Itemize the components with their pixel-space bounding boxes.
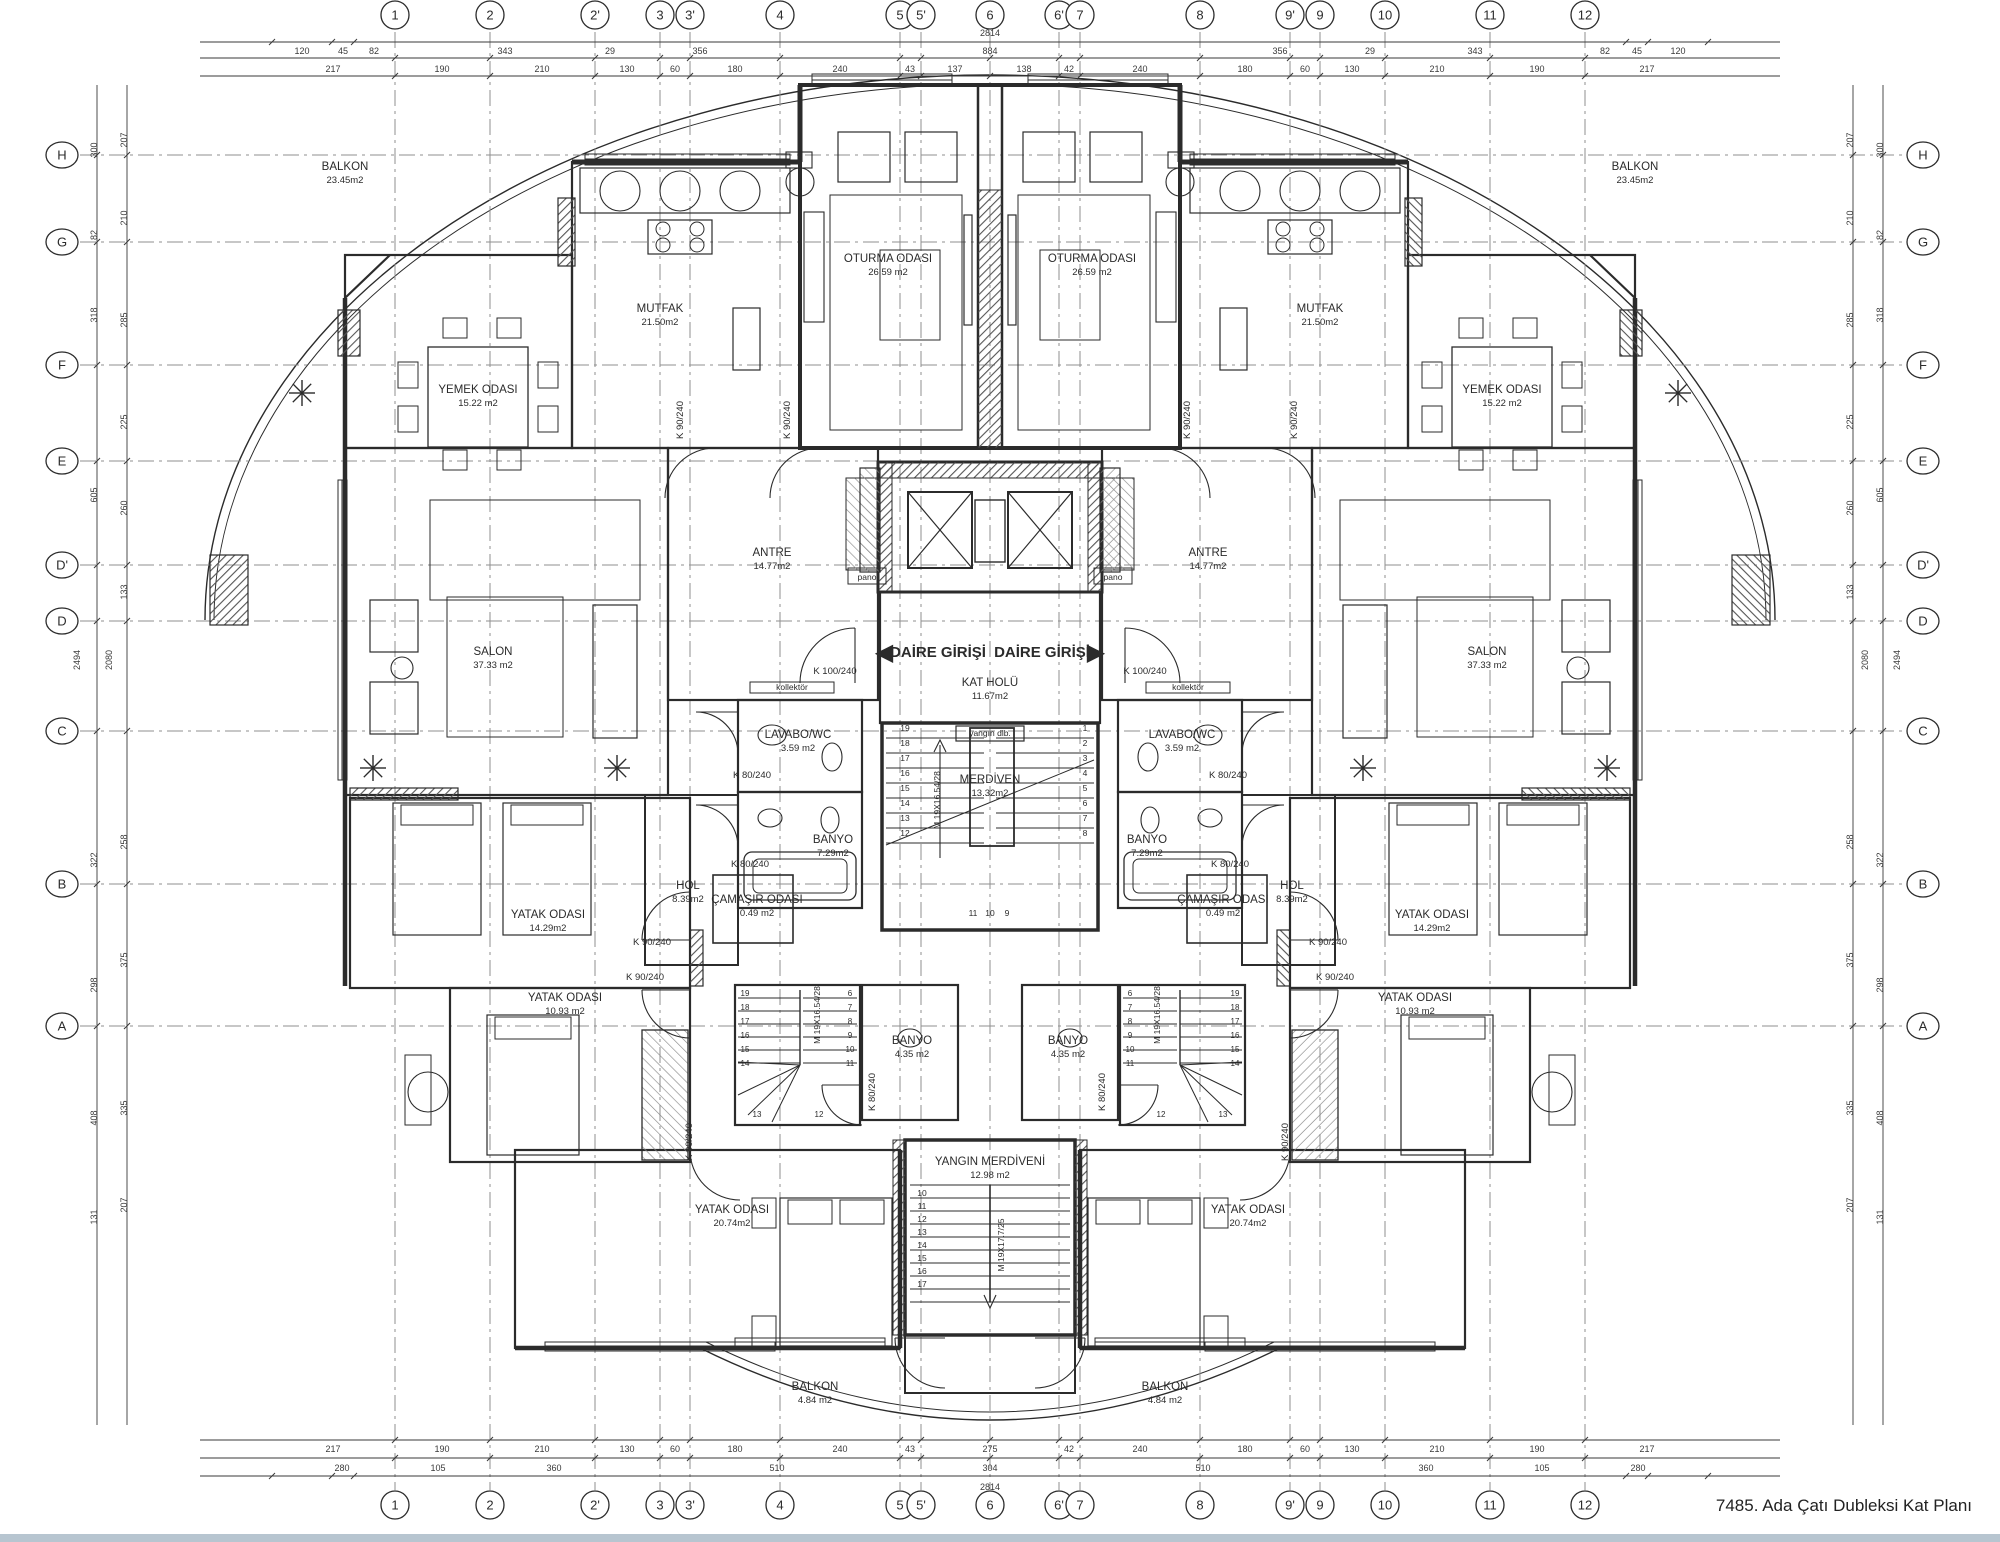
- furniture-sofa: [1343, 605, 1387, 738]
- room-label: MUTFAK: [637, 303, 684, 315]
- grid-bubble-label: 2: [486, 1498, 493, 1513]
- annotation-label: K 90/240: [782, 401, 793, 439]
- annotation-label: K 90/240: [1280, 1123, 1291, 1161]
- dim-text: 190: [1529, 1444, 1544, 1454]
- stair-step-number: 6: [1083, 798, 1088, 808]
- divider-shaft: [978, 190, 1002, 448]
- room-area-label: 4.84 m2: [798, 1395, 832, 1406]
- room-yatak-2074: [1080, 1150, 1465, 1348]
- stair-step-number: 16: [917, 1266, 927, 1276]
- stair-step-number: 5: [1083, 783, 1088, 793]
- dim-text: 298: [1875, 977, 1885, 992]
- stair-step-number: 15: [900, 783, 910, 793]
- room-area-label: 0.49 m2: [740, 908, 774, 919]
- stair-step-number: 7: [1083, 813, 1088, 823]
- dim-text: 240: [1132, 64, 1147, 74]
- grid-bubble-label: E: [1919, 454, 1928, 469]
- dim-text: 217: [325, 1444, 340, 1454]
- door-arc: [1118, 1085, 1158, 1125]
- wc-toilet: [822, 743, 842, 771]
- kitchen-sink-counter: [733, 308, 760, 370]
- dim-text: 45: [1632, 46, 1642, 56]
- dim-text: 304: [982, 1463, 997, 1473]
- room-label: KAT HOLÜ: [962, 677, 1018, 689]
- hatch-pier: [1620, 310, 1642, 356]
- room-area-label: 15.22 m2: [458, 398, 498, 409]
- stair-step-number: 13: [1219, 1110, 1228, 1119]
- stove-burner: [1310, 222, 1324, 236]
- dim-text: 335: [119, 1100, 129, 1115]
- furniture-chair: [1459, 450, 1483, 470]
- room-label: BALKON: [1142, 1381, 1189, 1393]
- furniture-armchair: [370, 600, 418, 652]
- stair-step-number: 16: [1231, 1031, 1240, 1040]
- stair-step-number: 16: [900, 768, 910, 778]
- dim-text: 210: [1845, 210, 1855, 225]
- kitchen-fixture: [660, 171, 700, 211]
- stair-step-number: 16: [741, 1031, 750, 1040]
- stair-step-number: 17: [917, 1279, 927, 1289]
- dim-text: 29: [1365, 46, 1375, 56]
- ceiling-star-icon: [1363, 768, 1372, 777]
- annotation-label: K 90/240: [1182, 401, 1193, 439]
- annotation-label: K 80/240: [731, 859, 769, 870]
- bidet: [1141, 807, 1159, 833]
- room-duplex-stair: [735, 985, 860, 1125]
- wall-chamfer: [345, 255, 390, 298]
- room-label: BALKON: [792, 1381, 839, 1393]
- dim-text: 260: [119, 500, 129, 515]
- annotation-label: M 19X16.54/28: [932, 771, 942, 829]
- room-area-label: 14.77m2: [1190, 561, 1227, 572]
- ceiling-star-icon: [302, 384, 311, 393]
- dim-text: 43: [905, 64, 915, 74]
- room-area-label: 13.32m2: [972, 788, 1009, 799]
- furniture-chair: [497, 318, 521, 338]
- ceiling-star-icon: [617, 768, 626, 777]
- dim-text: 510: [769, 1463, 784, 1473]
- grid-bubble-label: 7: [1076, 1498, 1083, 1513]
- bed-pillow: [401, 805, 473, 825]
- room-label: SALON: [1468, 646, 1507, 658]
- room-area-label: 23.45m2: [327, 175, 364, 186]
- stair-step-number: 6: [1128, 989, 1133, 998]
- grid-bubble-label: F: [1919, 358, 1927, 373]
- dim-text: 240: [832, 64, 847, 74]
- stove-burner: [656, 238, 670, 252]
- dim-total-text: 2494: [72, 650, 82, 670]
- room-area-label: 14.77m2: [754, 561, 791, 572]
- dim-text: 138: [1016, 64, 1031, 74]
- room-yatak-1429: [350, 798, 690, 988]
- stove-burner: [690, 238, 704, 252]
- dim-text: 318: [1875, 307, 1885, 322]
- dim-text: 82: [89, 230, 99, 240]
- dim-text: 356: [692, 46, 707, 56]
- annotation-label: M 19X16.54/28: [1152, 986, 1162, 1044]
- bed-pillow: [1409, 1017, 1485, 1039]
- stair-step-number: 8: [1128, 1017, 1133, 1026]
- dim-text: 605: [89, 487, 99, 502]
- stove-burner: [1276, 222, 1290, 236]
- room-label: BANYO: [1127, 834, 1167, 846]
- annotation-label: K 90/240: [1309, 937, 1347, 948]
- stair-step-number: 18: [741, 1003, 750, 1012]
- stair-step-number: 15: [917, 1253, 927, 1263]
- grid-bubble-label: 4: [776, 8, 783, 23]
- dim-text: 225: [119, 414, 129, 429]
- entrance-label: DAİRE GİRİŞİ: [994, 644, 1090, 661]
- dim-text: 42: [1064, 64, 1074, 74]
- furniture-chair-round: [408, 1072, 448, 1112]
- grid-bubble-label: 3': [685, 8, 695, 23]
- stair-step-number: 12: [917, 1214, 927, 1224]
- building-left-apartment: [210, 74, 972, 1351]
- annotation-label: K 100/240: [813, 666, 856, 677]
- entrance-label: DAİRE GİRİŞİ: [890, 644, 986, 661]
- stair-step-number: 15: [1231, 1045, 1240, 1054]
- room-label: BANYO: [1048, 1035, 1088, 1047]
- room-yatak-1429: [1290, 798, 1630, 988]
- annotation-label: K 90/240: [1289, 401, 1300, 439]
- grid-bubble-label: D: [1918, 614, 1927, 629]
- dim-text: 217: [1639, 64, 1654, 74]
- dim-text: 210: [534, 64, 549, 74]
- room-label: HOL: [1280, 880, 1304, 892]
- stair-step-number: 17: [900, 753, 910, 763]
- annotation-label: K 90/240: [675, 401, 686, 439]
- dim-text: 260: [1845, 500, 1855, 515]
- dim-text: 275: [982, 1444, 997, 1454]
- oturma-rug: [1018, 195, 1150, 430]
- furniture-armchair: [1090, 132, 1142, 182]
- stair-step-number: 18: [1231, 1003, 1240, 1012]
- grid-bubble-label: 7: [1076, 8, 1083, 23]
- stair-step-number: 4: [1083, 768, 1088, 778]
- grid-bubble-label: 6: [986, 8, 993, 23]
- room-label: ANTRE: [753, 547, 792, 559]
- furniture-armchair: [370, 682, 418, 734]
- stair-step-number: 10: [846, 1045, 855, 1054]
- hatch-pier: [338, 310, 360, 356]
- stair-winder: [1180, 1065, 1232, 1115]
- grid-bubble-label: 3: [656, 8, 663, 23]
- grid-bubble-label: H: [1918, 148, 1927, 163]
- room-label: YATAK ODASI: [1211, 1204, 1285, 1216]
- grid-bubble-label: 4: [776, 1498, 783, 1513]
- dim-text: 280: [334, 1463, 349, 1473]
- kitchen-fixture: [1280, 171, 1320, 211]
- room-area-label: 21.50m2: [1302, 317, 1339, 328]
- furniture-bed: [1499, 803, 1587, 935]
- annotation-label: M 19X17.7/25: [996, 1218, 1006, 1271]
- annotation-label: K 80/240: [867, 1073, 878, 1111]
- stove-burner: [1276, 238, 1290, 252]
- grid-bubble-label: 1: [391, 8, 398, 23]
- grid-bubble-label: 5: [896, 8, 903, 23]
- room-area-label: 4.35 m2: [1051, 1049, 1085, 1060]
- dim-text: 408: [89, 1110, 99, 1125]
- room-label: ÇAMAŞIR ODASI: [1177, 894, 1268, 906]
- annotation-label: K 80/240: [1097, 1073, 1108, 1111]
- dim-text: 190: [1529, 64, 1544, 74]
- annotation-label: K 80/240: [1211, 859, 1249, 870]
- dim-text: 60: [670, 64, 680, 74]
- stair-step-number: 2: [1083, 738, 1088, 748]
- ceiling-star-icon: [1678, 393, 1687, 402]
- furniture-chair: [1422, 406, 1442, 432]
- dim-text: 180: [727, 64, 742, 74]
- dim-text: 180: [1237, 1444, 1252, 1454]
- furniture-sofa: [593, 605, 637, 738]
- room-area-label: 15.22 m2: [1482, 398, 1522, 409]
- room-area-label: 12.98 m2: [970, 1170, 1010, 1181]
- furniture-chair: [1422, 362, 1442, 388]
- grid-bubble-label: D: [57, 614, 66, 629]
- furniture-chair: [1562, 362, 1582, 388]
- furniture-dining-table: [1452, 347, 1552, 447]
- dim-total-text: 2080: [1860, 650, 1870, 670]
- building-right-apartment: [1008, 74, 1770, 1351]
- bidet: [821, 807, 839, 833]
- grid-bubble-label: 10: [1378, 8, 1392, 23]
- dim-text: 360: [546, 1463, 561, 1473]
- room-label: ÇAMAŞIR ODASI: [711, 894, 802, 906]
- door-arc: [1160, 448, 1210, 498]
- room-area-label: 21.50m2: [642, 317, 679, 328]
- furniture-bed: [780, 1198, 892, 1346]
- room-area-label: 14.29m2: [1414, 923, 1451, 934]
- room-area-label: 4.84 m2: [1148, 1395, 1182, 1406]
- grid-bubble-label: E: [58, 454, 67, 469]
- grid-bubble-label: 10: [1378, 1498, 1392, 1513]
- dim-text: 82: [369, 46, 379, 56]
- dim-text: 360: [1418, 1463, 1433, 1473]
- stair-step-number: 13: [917, 1227, 927, 1237]
- floorplan-svg: BALKON23.45m2BALKON23.45m2MUTFAK21.50m2M…: [0, 0, 2000, 1542]
- ceiling-star-icon: [1363, 759, 1372, 768]
- stair-step-number: 12: [1157, 1110, 1166, 1119]
- furniture-desk: [405, 1055, 431, 1125]
- stair-step-number: 11: [969, 908, 978, 918]
- stove-burner: [690, 222, 704, 236]
- room-area-label: 10.93 m2: [1395, 1006, 1435, 1017]
- stove-burner: [656, 222, 670, 236]
- ceiling-star-icon: [608, 768, 617, 777]
- dim-text: 318: [89, 307, 99, 322]
- room-label: YATAK ODASI: [1378, 992, 1452, 1004]
- door-arc: [1242, 805, 1284, 847]
- kitchen-counter: [580, 168, 790, 213]
- furniture-chair: [1513, 318, 1537, 338]
- dim-total-text: 2080: [104, 650, 114, 670]
- dim-text: 82: [1875, 230, 1885, 240]
- room-area-label: 4.35 m2: [895, 1049, 929, 1060]
- room-area-label: 3.59 m2: [781, 743, 815, 754]
- room-area-label: 7.29m2: [1131, 848, 1163, 859]
- furniture-chair: [1513, 450, 1537, 470]
- bed-pillow: [1148, 1200, 1192, 1224]
- grid-bubble-label: B: [1919, 877, 1928, 892]
- annotation-label: kollektör: [1172, 682, 1204, 692]
- ceiling-star-icon: [1607, 759, 1616, 768]
- door-arc: [822, 1085, 862, 1125]
- room-area-label: 0.49 m2: [1206, 908, 1240, 919]
- room-label: BANYO: [813, 834, 853, 846]
- stair-step-number: 17: [741, 1017, 750, 1026]
- furniture-bed: [487, 1015, 579, 1155]
- room-area-label: 37.33 m2: [1467, 660, 1507, 671]
- room-label: ANTRE: [1189, 547, 1228, 559]
- room-area-label: 8.39m2: [672, 894, 704, 905]
- furniture-dining-table: [428, 347, 528, 447]
- room-area-label: 26.59 m2: [868, 267, 908, 278]
- dim-text: 343: [497, 46, 512, 56]
- room-label: YATAK ODASI: [695, 1204, 769, 1216]
- grid-bubble-label: 3': [685, 1498, 695, 1513]
- dim-text: 322: [1875, 852, 1885, 867]
- furniture-bed: [1401, 1015, 1493, 1155]
- furniture-chair: [443, 450, 467, 470]
- dim-text: 285: [119, 312, 129, 327]
- stair-step-number: 10: [985, 908, 995, 918]
- stair-step-number: 7: [848, 1003, 853, 1012]
- grid-bubble-label: 5': [916, 1498, 926, 1513]
- annotation-label: K 90/240: [684, 1123, 695, 1161]
- dim-text: 60: [1300, 1444, 1310, 1454]
- stair-step-number: 15: [741, 1045, 750, 1054]
- dim-text: 60: [1300, 64, 1310, 74]
- dim-text: 408: [1875, 1110, 1885, 1125]
- stair-step-number: 18: [900, 738, 910, 748]
- ceiling-star-icon: [1669, 384, 1678, 393]
- stair-step-number: 9: [848, 1031, 853, 1040]
- kitchen-fixture: [720, 171, 760, 211]
- furniture-sofa: [804, 212, 824, 322]
- dim-text: 82: [1600, 46, 1610, 56]
- dim-text: 258: [119, 834, 129, 849]
- door-arc: [1035, 1338, 1085, 1388]
- core-wall-hatch: [878, 462, 1102, 478]
- grid-bubble-label: F: [58, 358, 66, 373]
- wall-chamfer: [1590, 255, 1635, 298]
- stair-step-number: 12: [900, 828, 910, 838]
- footer-bar: [0, 1534, 2000, 1542]
- door-arc: [696, 712, 738, 754]
- wardrobe: [1292, 1030, 1338, 1160]
- hatch-pier: [558, 198, 575, 266]
- grid-bubble-label: 2': [590, 8, 600, 23]
- stair-step-number: 13: [753, 1110, 762, 1119]
- bed-pillow: [511, 805, 583, 825]
- furniture-bed: [1088, 1198, 1200, 1346]
- ceiling-star-icon: [293, 384, 302, 393]
- stair-winder: [1180, 1065, 1208, 1122]
- grid-bubble-label: C: [1918, 724, 1927, 739]
- grid-bubble-label: A: [58, 1019, 67, 1034]
- furniture-chair: [538, 362, 558, 388]
- room-label: OTURMA ODASI: [1048, 253, 1136, 265]
- furniture-sofa: [1156, 212, 1176, 322]
- dim-text: 133: [119, 584, 129, 599]
- annotation-label: K 80/240: [1209, 770, 1247, 781]
- dim-text: 343: [1467, 46, 1482, 56]
- grid-bubble-label: 8: [1196, 8, 1203, 23]
- dim-total-text: 2494: [1892, 650, 1902, 670]
- furniture-chair: [398, 362, 418, 388]
- tv-unit: [1008, 215, 1016, 325]
- stair-step-number: 1: [1083, 723, 1088, 733]
- hatch-pier: [1277, 930, 1290, 986]
- room-label: YATAK ODASI: [511, 909, 585, 921]
- grid-bubble-label: 6': [1054, 1498, 1064, 1513]
- furniture-bed: [393, 803, 481, 935]
- dim-text: 43: [905, 1444, 915, 1454]
- bed-pillow: [788, 1200, 832, 1224]
- dim-text: 190: [434, 64, 449, 74]
- dim-text: 258: [1845, 834, 1855, 849]
- grid-bubble-label: 11: [1483, 1498, 1497, 1513]
- stair-step-number: 9: [1128, 1031, 1133, 1040]
- hatch-pier: [690, 930, 703, 986]
- room-label: MUTFAK: [1297, 303, 1344, 315]
- grid-bubble-label: 2: [486, 8, 493, 23]
- dim-text: 356: [1272, 46, 1287, 56]
- grid-bubble-label: D': [1917, 558, 1929, 573]
- dim-text: 131: [1875, 1209, 1885, 1224]
- room-area-label: 11.67m2: [972, 691, 1008, 702]
- grid-bubble-label: 11: [1483, 8, 1497, 23]
- dim-text: 120: [1670, 46, 1685, 56]
- room-label: YATAK ODASI: [1395, 909, 1469, 921]
- dim-text: 210: [1429, 64, 1444, 74]
- dim-text: 180: [727, 1444, 742, 1454]
- dim-text: 120: [294, 46, 309, 56]
- ceiling-star-icon: [1669, 393, 1678, 402]
- dim-text: 130: [1344, 64, 1359, 74]
- door-arc: [1242, 712, 1284, 754]
- room-area-label: 23.45m2: [1617, 175, 1654, 186]
- ceiling-star-icon: [1354, 759, 1363, 768]
- dim-text: 130: [619, 1444, 634, 1454]
- kitchen-sink-counter: [1220, 308, 1247, 370]
- stair-step-number: 14: [917, 1240, 927, 1250]
- dim-text: 210: [534, 1444, 549, 1454]
- entrance-arrow-icon: ◀: [875, 639, 894, 666]
- ceiling-star-icon: [1354, 768, 1363, 777]
- stair-winder: [1180, 1065, 1242, 1095]
- grid-bubble-label: G: [57, 235, 67, 250]
- door-arc: [690, 1150, 740, 1200]
- annotation-label: K 90/240: [633, 937, 671, 948]
- stair-step-number: 8: [1083, 828, 1088, 838]
- dim-text: 190: [434, 1444, 449, 1454]
- stair-winder: [748, 1065, 800, 1115]
- stair-step-number: 14: [1231, 1059, 1240, 1068]
- grid-bubble-label: D': [56, 558, 68, 573]
- ceiling-star-icon: [1598, 768, 1607, 777]
- dim-text: 884: [982, 46, 997, 56]
- dim-text: 207: [1845, 132, 1855, 147]
- grid-bubble-label: 12: [1578, 1498, 1592, 1513]
- dim-text: 105: [1534, 1463, 1549, 1473]
- dim-text: 225: [1845, 414, 1855, 429]
- grid-bubble-label: 9': [1285, 8, 1295, 23]
- furniture-chair: [538, 406, 558, 432]
- stair-step-number: 13: [900, 813, 910, 823]
- room-area-label: 7.29m2: [817, 848, 849, 859]
- furniture-chair: [1459, 318, 1483, 338]
